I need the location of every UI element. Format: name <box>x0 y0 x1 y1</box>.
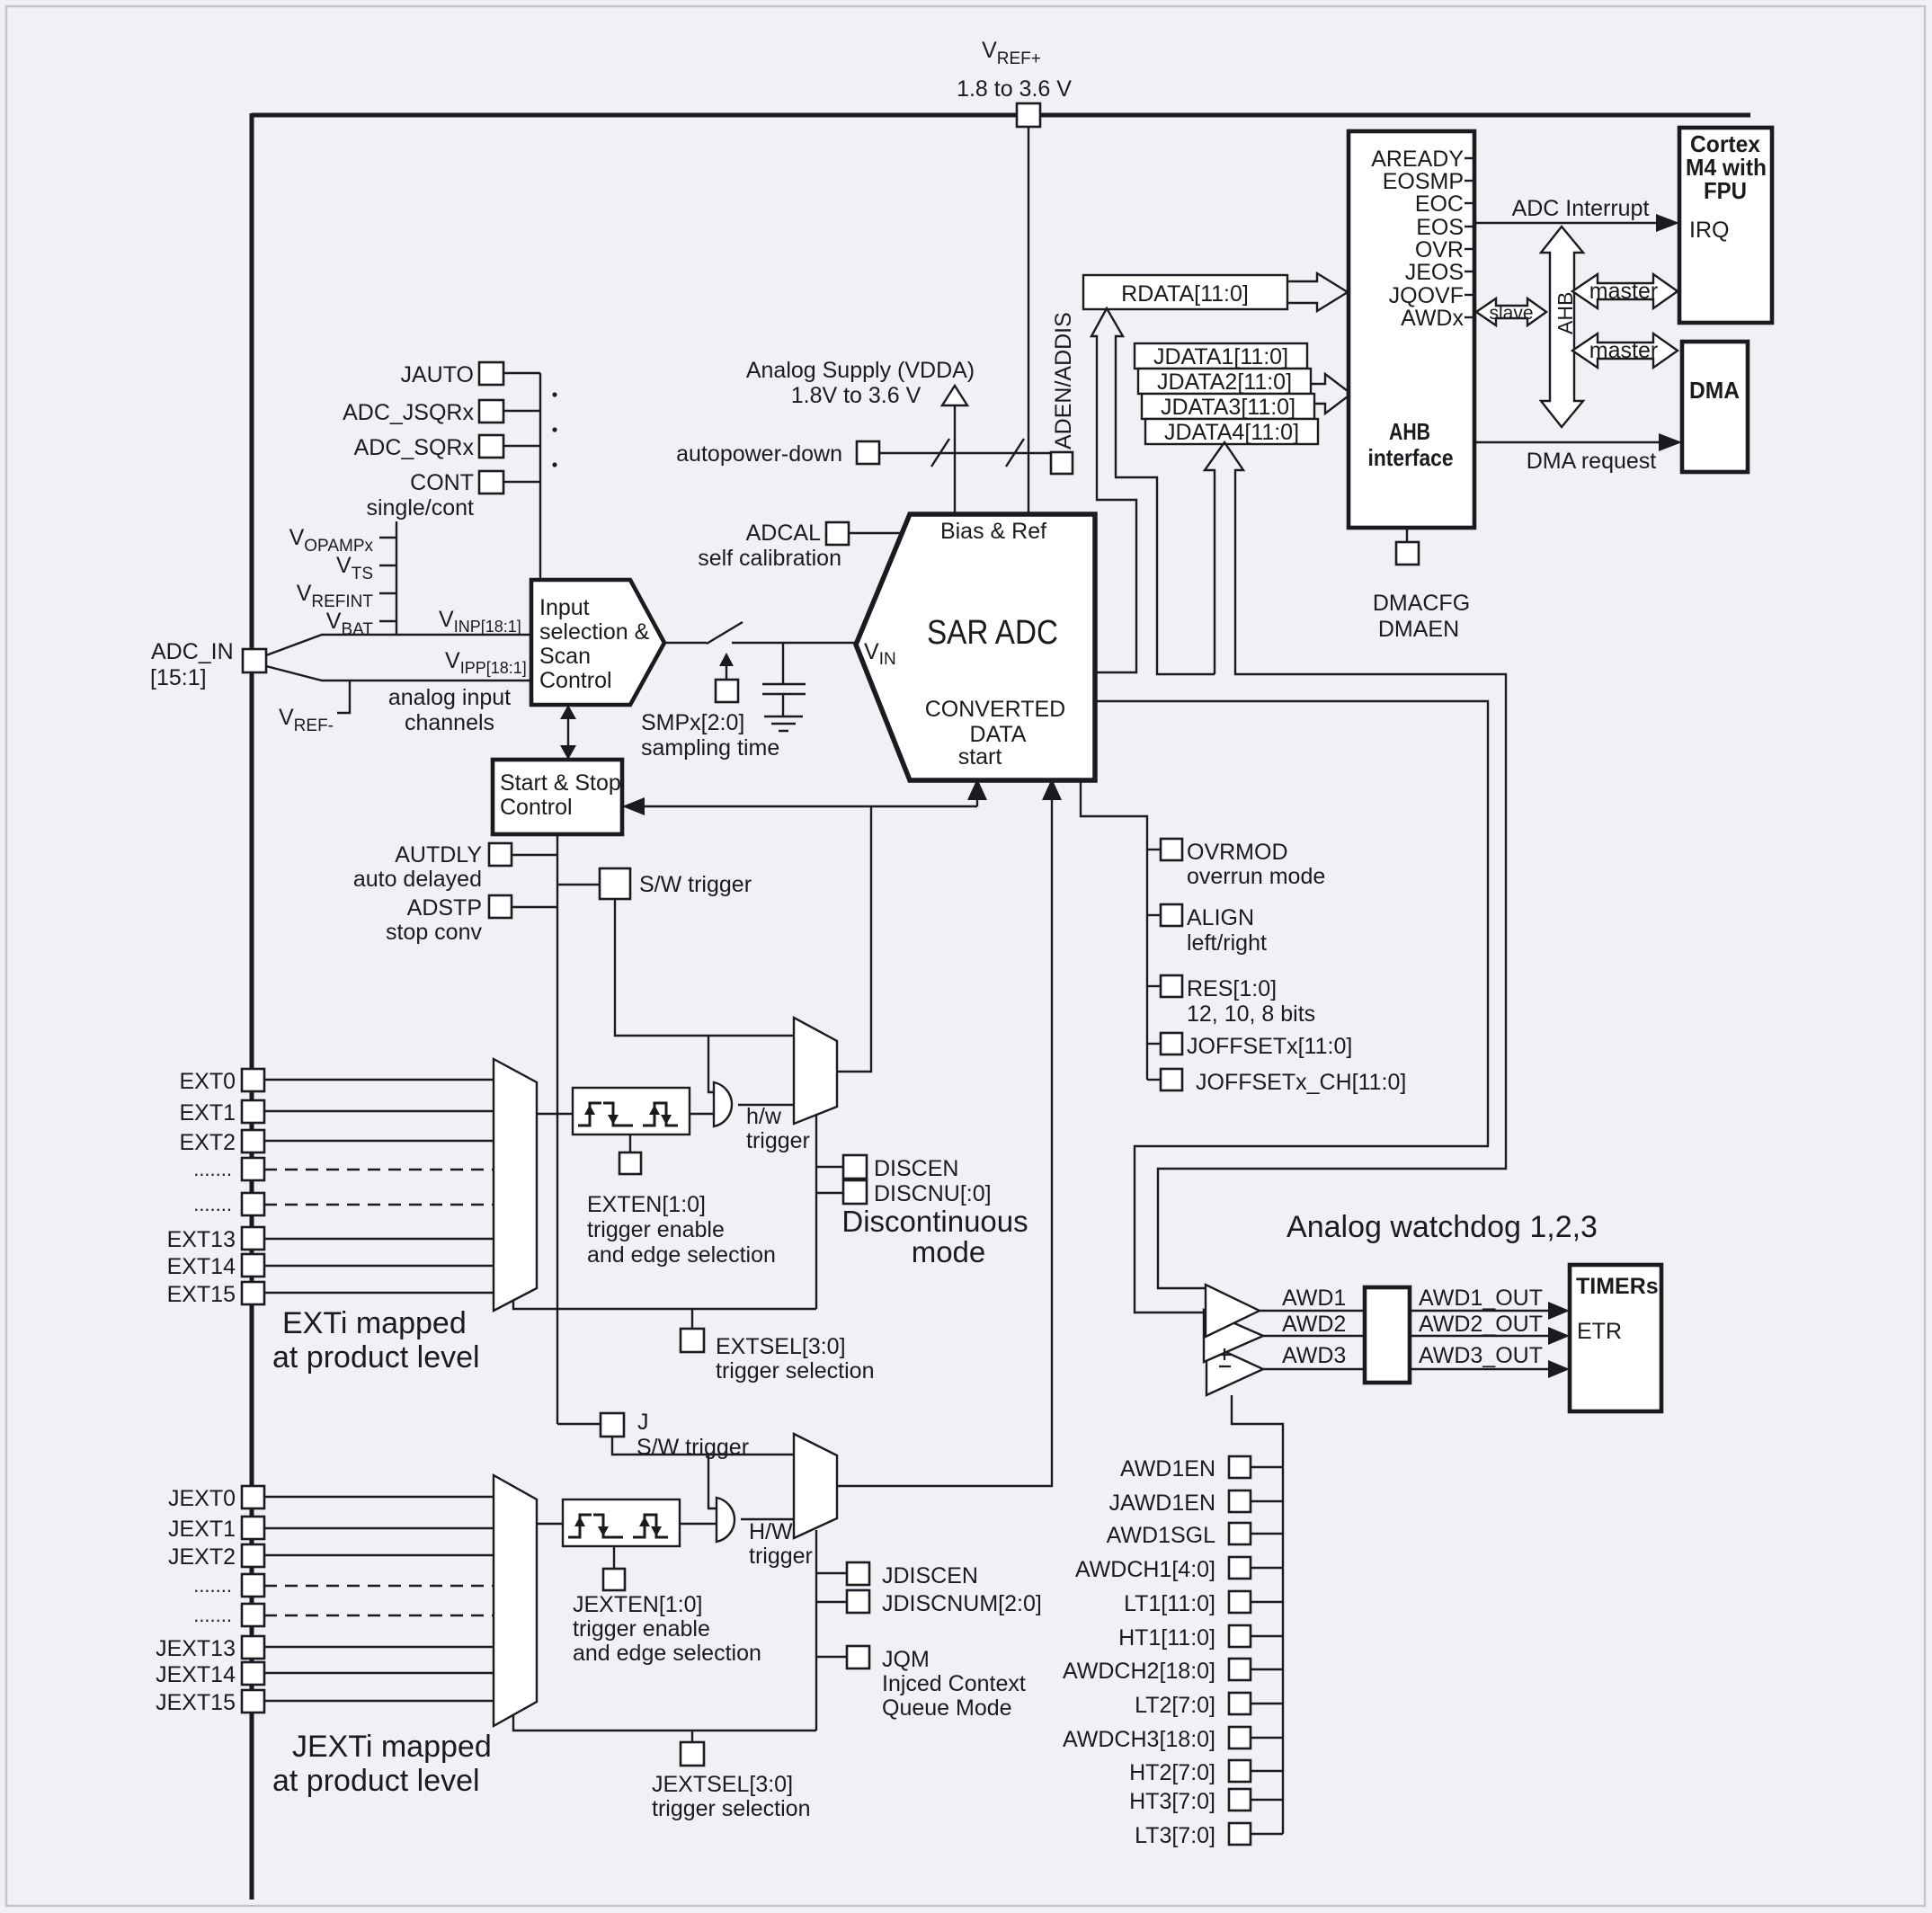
svg-text:JAUTO: JAUTO <box>401 362 475 387</box>
svg-text:JEXT1: JEXT1 <box>168 1517 236 1542</box>
svg-text:AREADY: AREADY <box>1371 147 1464 172</box>
svg-text:and edge selection: and edge selection <box>587 1242 776 1268</box>
svg-text:JDATA4[11:0]: JDATA4[11:0] <box>1164 420 1299 445</box>
svg-text:12, 10, 8 bits: 12, 10, 8 bits <box>1187 1001 1315 1027</box>
svg-text:JEXT0: JEXT0 <box>168 1486 236 1511</box>
svg-text:LT1[11:0]: LT1[11:0] <box>1124 1591 1215 1616</box>
svg-text:DMA request: DMA request <box>1527 449 1657 474</box>
svg-text:trigger: trigger <box>749 1544 813 1569</box>
svg-text:JDATA1[11:0]: JDATA1[11:0] <box>1153 344 1288 369</box>
svg-text:trigger selection: trigger selection <box>652 1796 810 1821</box>
svg-text:SMPx[2:0]: SMPx[2:0] <box>641 710 744 735</box>
svg-text:Input: Input <box>539 595 590 620</box>
svg-text:EXT2: EXT2 <box>179 1130 236 1155</box>
svg-text:LT2[7:0]: LT2[7:0] <box>1135 1693 1215 1718</box>
svg-text:Analog Supply (VDDA): Analog Supply (VDDA) <box>746 358 975 383</box>
svg-text:AWD1EN: AWD1EN <box>1120 1456 1215 1481</box>
svg-text:trigger enable: trigger enable <box>587 1217 725 1242</box>
svg-text:IRQ: IRQ <box>1689 218 1729 243</box>
svg-text:DMACFG: DMACFG <box>1373 591 1470 616</box>
svg-text:EXT14: EXT14 <box>167 1254 236 1279</box>
svg-text:selection &: selection & <box>539 619 650 645</box>
svg-text:ADC Interrupt: ADC Interrupt <box>1512 196 1650 221</box>
svg-text:EXT1: EXT1 <box>179 1100 236 1126</box>
svg-text:EXTSEL[3:0]: EXTSEL[3:0] <box>716 1334 846 1359</box>
svg-text:AWD1_OUT: AWD1_OUT <box>1419 1286 1543 1311</box>
svg-text:JDISCNUM[2:0]: JDISCNUM[2:0] <box>882 1591 1042 1616</box>
svg-text:EOC: EOC <box>1415 191 1464 217</box>
svg-text:.......: ....... <box>193 1158 232 1180</box>
svg-text:FPU: FPU <box>1704 177 1747 204</box>
svg-text:AWD3: AWD3 <box>1282 1343 1346 1368</box>
svg-text:S/W trigger: S/W trigger <box>639 872 752 897</box>
svg-text:JOFFSETx_CH[11:0]: JOFFSETx_CH[11:0] <box>1196 1070 1406 1095</box>
svg-text:AHB: AHB <box>1389 418 1430 445</box>
svg-text:SAR ADC: SAR ADC <box>927 614 1058 652</box>
svg-text:Start & Stop: Start & Stop <box>500 770 621 796</box>
svg-text:LT3[7:0]: LT3[7:0] <box>1135 1823 1215 1848</box>
svg-text:left/right: left/right <box>1187 930 1267 956</box>
svg-text:JEOS: JEOS <box>1405 260 1464 285</box>
svg-text:AHB: AHB <box>1554 292 1577 334</box>
svg-text:AWD3_OUT: AWD3_OUT <box>1419 1343 1543 1368</box>
svg-text:HT2[7:0]: HT2[7:0] <box>1129 1760 1215 1785</box>
svg-text:ETR: ETR <box>1577 1319 1622 1344</box>
svg-text:at product level: at product level <box>272 1340 480 1375</box>
svg-text:JEXT14: JEXT14 <box>156 1662 236 1687</box>
svg-text:trigger enable: trigger enable <box>573 1616 710 1642</box>
svg-text:ADEN/ADDIS: ADEN/ADDIS <box>1051 312 1076 449</box>
svg-text:JEXT13: JEXT13 <box>156 1636 236 1661</box>
svg-text:J: J <box>637 1410 649 1435</box>
svg-text:AWD1SGL: AWD1SGL <box>1107 1523 1215 1548</box>
svg-text:JQM: JQM <box>882 1647 930 1672</box>
svg-text:trigger: trigger <box>746 1128 810 1153</box>
svg-text:CONVERTED: CONVERTED <box>925 697 1066 722</box>
svg-text:JAWD1EN: JAWD1EN <box>1108 1490 1215 1516</box>
svg-text:[15:1]: [15:1] <box>150 665 207 690</box>
svg-text:EXT0: EXT0 <box>179 1069 236 1094</box>
svg-text:DISCNU[:0]: DISCNU[:0] <box>874 1181 992 1206</box>
svg-text:AUTDLY: AUTDLY <box>395 842 482 868</box>
svg-text:JDATA2[11:0]: JDATA2[11:0] <box>1157 369 1292 395</box>
svg-text:auto delayed: auto delayed <box>353 867 482 892</box>
svg-text:AWDCH2[18:0]: AWDCH2[18:0] <box>1063 1659 1215 1684</box>
svg-text:DISCEN: DISCEN <box>874 1156 958 1181</box>
svg-text:HT3[7:0]: HT3[7:0] <box>1129 1789 1215 1814</box>
svg-text:AWD2_OUT: AWD2_OUT <box>1419 1312 1543 1337</box>
svg-text:JDISCEN: JDISCEN <box>882 1563 978 1588</box>
svg-text:stop conv: stop conv <box>386 920 483 945</box>
svg-text:ADC_IN: ADC_IN <box>151 639 234 664</box>
svg-text:JEXTSEL[3:0]: JEXTSEL[3:0] <box>652 1772 793 1797</box>
svg-text:DMA: DMA <box>1689 377 1740 404</box>
svg-text:JOFFSETx[11:0]: JOFFSETx[11:0] <box>1187 1034 1352 1059</box>
svg-text:trigger selection: trigger selection <box>716 1358 874 1384</box>
svg-text:DMAEN: DMAEN <box>1378 617 1459 642</box>
svg-text:self calibration: self calibration <box>698 546 841 571</box>
svg-text:AWD2: AWD2 <box>1282 1312 1346 1337</box>
svg-text:ADSTP: ADSTP <box>407 895 482 921</box>
svg-text:S/W trigger: S/W trigger <box>637 1435 749 1460</box>
svg-text:master: master <box>1589 338 1658 363</box>
svg-text:AWDx: AWDx <box>1401 306 1464 331</box>
svg-text:.......: ....... <box>193 1604 232 1626</box>
svg-text:and edge selection: and edge selection <box>573 1641 761 1666</box>
svg-text:TIMERs: TIMERs <box>1576 1274 1659 1299</box>
svg-text:Control: Control <box>539 668 612 693</box>
svg-text:analog input: analog input <box>388 685 511 710</box>
svg-text:HT1[11:0]: HT1[11:0] <box>1118 1625 1215 1651</box>
svg-text:Injced Context: Injced Context <box>882 1671 1026 1696</box>
svg-text:OVR: OVR <box>1415 237 1464 262</box>
svg-text:autopower-down: autopower-down <box>676 441 842 467</box>
svg-text:interface: interface <box>1368 444 1454 471</box>
svg-text:mode: mode <box>912 1235 986 1268</box>
svg-text:channels: channels <box>405 710 494 735</box>
svg-text:DATA: DATA <box>970 722 1027 747</box>
svg-text:Discontinuous: Discontinuous <box>841 1205 1028 1238</box>
svg-text:Analog watchdog 1,2,3: Analog watchdog 1,2,3 <box>1287 1210 1598 1244</box>
svg-text:OVRMOD: OVRMOD <box>1187 840 1288 865</box>
svg-text:RES[1:0]: RES[1:0] <box>1187 976 1277 1001</box>
svg-text:EXTi mapped: EXTi mapped <box>282 1306 467 1340</box>
svg-text:JDATA3[11:0]: JDATA3[11:0] <box>1161 395 1295 420</box>
svg-text:CONT: CONT <box>410 470 474 495</box>
svg-text:RDATA[11:0]: RDATA[11:0] <box>1121 281 1249 307</box>
svg-text:Bias & Ref: Bias & Ref <box>940 519 1046 544</box>
svg-text:master: master <box>1589 279 1658 304</box>
svg-text:EOS: EOS <box>1416 215 1464 240</box>
svg-text:EXT13: EXT13 <box>167 1227 236 1252</box>
svg-text:H/W: H/W <box>749 1519 793 1544</box>
svg-text:JQOVF: JQOVF <box>1389 283 1464 308</box>
svg-text:ADC_SQRx: ADC_SQRx <box>354 435 475 460</box>
svg-text:JEXTEN[1:0]: JEXTEN[1:0] <box>573 1592 703 1617</box>
svg-text:.......: ....... <box>193 1193 232 1215</box>
svg-text:JEXT15: JEXT15 <box>156 1690 236 1715</box>
svg-text:EXT15: EXT15 <box>167 1282 236 1307</box>
svg-text:EOSMP: EOSMP <box>1383 169 1464 194</box>
svg-text:1.8 to 3.6 V: 1.8 to 3.6 V <box>957 76 1072 102</box>
svg-text:Control: Control <box>500 795 573 820</box>
svg-text:AWD1: AWD1 <box>1282 1286 1346 1311</box>
svg-text:single/cont: single/cont <box>366 495 474 521</box>
svg-text:AWDCH3[18:0]: AWDCH3[18:0] <box>1063 1727 1215 1752</box>
svg-text:1.8V to 3.6 V: 1.8V to 3.6 V <box>791 383 921 408</box>
svg-text:ADC_JSQRx: ADC_JSQRx <box>343 400 474 425</box>
svg-text:overrun mode: overrun mode <box>1187 864 1325 889</box>
svg-text:at product level: at product level <box>272 1764 480 1798</box>
svg-text:JEXT2: JEXT2 <box>168 1544 236 1570</box>
svg-text:start: start <box>958 744 1002 770</box>
svg-text:AWDCH1[4:0]: AWDCH1[4:0] <box>1075 1557 1215 1582</box>
svg-text:.......: ....... <box>193 1574 232 1597</box>
svg-text:Scan: Scan <box>539 644 591 669</box>
svg-text:h/w: h/w <box>746 1104 782 1129</box>
svg-text:slave: slave <box>1489 303 1533 324</box>
svg-text:ADCAL: ADCAL <box>746 521 821 546</box>
svg-text:ALIGN: ALIGN <box>1187 905 1254 930</box>
svg-text:Queue Mode: Queue Mode <box>882 1695 1012 1721</box>
svg-text:JEXTi mapped: JEXTi mapped <box>292 1730 492 1764</box>
svg-text:EXTEN[1:0]: EXTEN[1:0] <box>587 1192 706 1217</box>
svg-text:sampling time: sampling time <box>641 735 779 761</box>
